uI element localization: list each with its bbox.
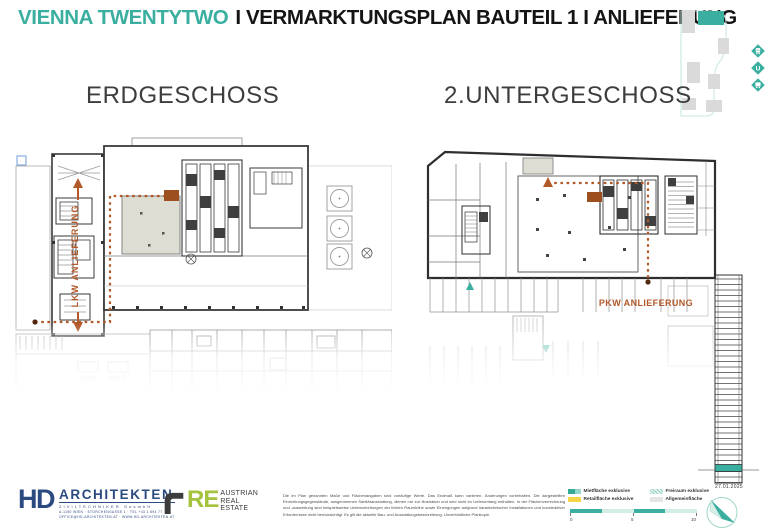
retailflaeche-swatch (568, 497, 581, 502)
shaded-zone-ug (523, 158, 553, 174)
legend-item-allgemeinflaeche: Allgemeinfläche (650, 497, 722, 502)
floorplan-erdgeschoss: LKW ANLIEFERUNG (12, 136, 392, 406)
ubahn-letter: U (756, 65, 761, 72)
are-mark-icon (163, 489, 185, 517)
legend: Mietfläche exklusive Freiraum exklusive … (568, 489, 722, 502)
scale-tick-0: 0 (570, 517, 573, 522)
mietflaeche-swatch (568, 489, 581, 494)
lower-buildings (12, 324, 392, 406)
loading-dock-ug (587, 192, 602, 202)
floorplan-untergeschoss: PKW ANLIEFERUNG (418, 136, 730, 428)
lane-entry-marker (17, 156, 26, 165)
legend-label: Mietfläche exklusive (584, 489, 630, 494)
shaded-zone (122, 196, 180, 254)
terrace-area (308, 166, 392, 310)
are-line-1: AUSTRIAN (220, 490, 258, 498)
title-erdgeschoss: ERDGESCHOSS (86, 82, 279, 110)
hd-subtitle: ZIVILTECHNIKER GesmbH (59, 504, 175, 509)
plan-sheet: VIENNA TWENTYTWOI VERMARKTUNGSPLAN BAUTE… (0, 0, 770, 532)
train-icon (751, 44, 765, 58)
transit-icons: U (751, 44, 765, 92)
title-untergeschoss: 2.UNTERGESCHOSS (444, 82, 692, 110)
scale-tick-5: 5 (631, 517, 634, 522)
highlighted-building (698, 11, 724, 25)
page-title: VIENNA TWENTYTWOI VERMARKTUNGSPLAN BAUTE… (18, 6, 737, 30)
are-logo: RE AUSTRIAN REAL ESTATE (163, 489, 258, 517)
lkw-route-label: LKW ANLIEFERUNG (70, 205, 80, 308)
brand-name: VIENNA TWENTYTWO (18, 6, 228, 29)
allgemeinflaeche-swatch (650, 497, 663, 502)
legend-item-freiraum: Freiraum exklusive (650, 489, 722, 494)
loading-dock (164, 190, 179, 201)
are-line-3: ESTATE (220, 505, 258, 513)
disclaimer-text: Die im Plan genannten Maße und Flächenan… (283, 493, 565, 518)
ramp-marker (466, 282, 474, 290)
hd-architekten-logo: HD ARCHITEKTEN ZIVILTECHNIKER GesmbH A-1… (18, 488, 175, 519)
legend-label: Retailfläche exklusive (584, 497, 634, 502)
legend-item-mietflaeche: Mietfläche exklusive (568, 489, 648, 494)
freiraum-swatch (650, 489, 663, 494)
ug-building (428, 152, 715, 278)
are-line-2: REAL (220, 498, 258, 506)
current-level-highlight (715, 465, 742, 472)
hd-address-2: OFFICE@HD-ARCHITEKTEN.AT · WWW.HD-ARCHIT… (59, 515, 175, 520)
scale-bar: 0 5 10 (570, 509, 697, 523)
pkw-route-label: PKW ANLIEFERUNG (599, 298, 693, 308)
fade-overlay (418, 320, 730, 428)
scale-tick-10: 10 (691, 517, 696, 522)
lkw-lane (16, 156, 50, 330)
hd-name: ARCHITEKTEN (59, 488, 175, 503)
hd-mark: HD (18, 488, 54, 511)
legend-label: Allgemeinfläche (666, 497, 703, 502)
legend-label: Freiraum exklusive (666, 489, 709, 494)
planters (327, 186, 352, 269)
level-indicator (695, 262, 770, 495)
bus-icon (751, 78, 765, 92)
legend-item-retailflaeche: Retailfläche exklusive (568, 497, 648, 502)
page-subtitle: I VERMARKTUNGSPLAN BAUTEIL 1 I ANLIEFERU… (235, 6, 736, 29)
are-re: RE (187, 489, 218, 511)
ubahn-icon: U (751, 61, 765, 75)
